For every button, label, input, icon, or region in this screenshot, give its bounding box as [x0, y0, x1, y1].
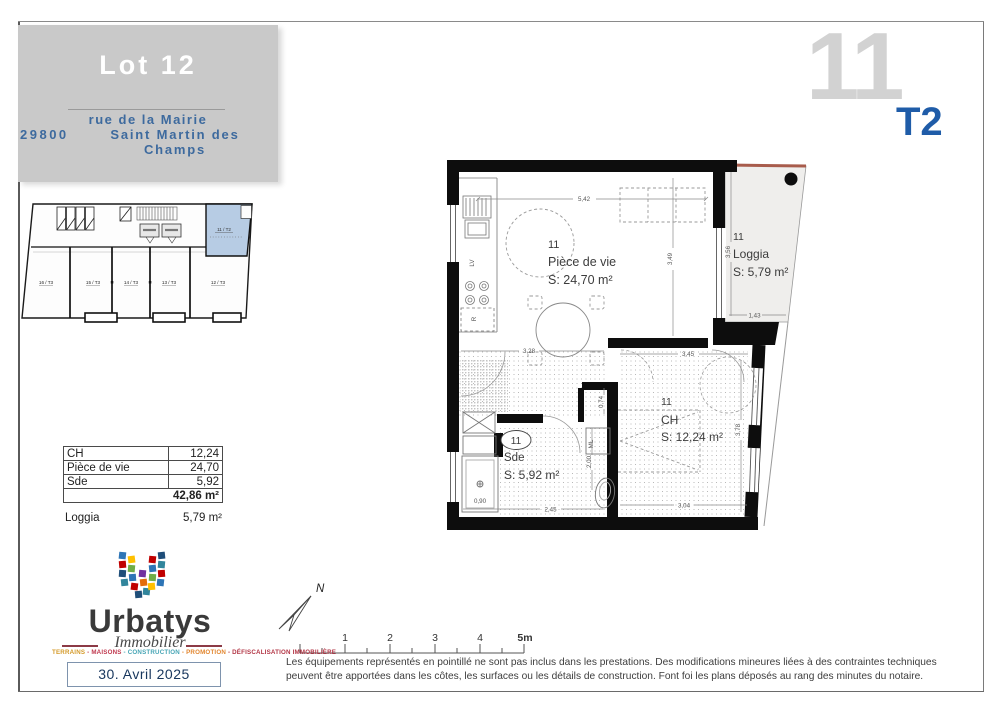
surface-table: CH12,24 Pièce de vie24,70 Sde5,92 42,86 …	[63, 446, 223, 503]
site-boundary-line	[764, 322, 788, 526]
loggia-value: 5,79 m²	[183, 512, 222, 524]
address-city: Saint Martin des Champs	[80, 127, 270, 157]
hob-icon	[466, 282, 475, 291]
loggia-label: Loggia	[65, 512, 100, 524]
sde-number: 11	[511, 436, 522, 447]
bedroom-area: S: 12,24 m²	[661, 430, 723, 444]
floor-plan: LV R	[435, 148, 820, 543]
svg-text:16 / T3: 16 / T3	[39, 280, 54, 285]
svg-text:4: 4	[477, 632, 483, 644]
disclaimer-line-2: peuvent être apportées dans les côtes, l…	[286, 670, 976, 684]
loggia-number: 11	[733, 231, 744, 243]
loggia-edge-line	[727, 165, 806, 166]
svg-text:15 / T3: 15 / T3	[86, 280, 101, 285]
svg-text:1,43: 1,43	[748, 313, 761, 320]
division-line-right	[186, 645, 222, 647]
svg-text:3,56: 3,56	[725, 245, 732, 258]
sde-area: S: 5,92 m²	[504, 468, 559, 482]
urbatys-logo-icon	[112, 550, 174, 602]
loggia-name: Loggia	[733, 247, 769, 261]
postal-code: 29800	[20, 127, 69, 142]
key-plan-bays	[85, 313, 241, 322]
kitchen-counter	[459, 178, 497, 332]
chair-icon	[528, 296, 542, 309]
living-area: S: 24,70 m²	[548, 273, 613, 287]
disclaimer: Les équipements représentés en pointillé…	[286, 656, 976, 683]
unit-number: 11	[806, 14, 901, 120]
header-divider	[68, 109, 225, 110]
loggia-area-label: S: 5,79 m²	[733, 265, 788, 279]
svg-text:14 / T3: 14 / T3	[124, 280, 139, 285]
living-number: 11	[548, 239, 559, 251]
frame-bottom	[18, 691, 984, 692]
table-row: CH12,24	[64, 447, 223, 461]
header-box	[18, 25, 278, 182]
svg-text:1: 1	[342, 632, 348, 644]
svg-text:12 / T3: 12 / T3	[211, 280, 226, 285]
svg-text:0,74: 0,74	[598, 395, 605, 408]
scale-labels: 1 2 3 4 5m	[342, 632, 533, 644]
plan-date: 30. Avril 2025	[67, 662, 221, 687]
svg-text:3,04: 3,04	[678, 503, 691, 510]
table-total-row: 42,86 m²	[64, 489, 223, 503]
lot-title: Lot 12	[18, 50, 278, 81]
svg-text:2: 2	[387, 632, 393, 644]
svg-text:5,42: 5,42	[578, 196, 591, 203]
svg-text:2,45: 2,45	[544, 507, 557, 514]
living-name: Pièce de vie	[548, 255, 616, 269]
svg-text:5m: 5m	[517, 632, 532, 644]
loggia-area-row: Loggia 5,79 m²	[65, 512, 222, 524]
bedroom-name: CH	[661, 413, 678, 427]
washer-label: ML	[588, 439, 595, 448]
fridge-label: R	[471, 316, 478, 321]
svg-text:3,49: 3,49	[667, 252, 674, 265]
svg-text:0,90: 0,90	[474, 498, 487, 505]
plan-sheet-page: Lot 12 rue de la Mairie 29800 Saint Mart…	[0, 0, 1000, 707]
address-street: rue de la Mairie	[38, 112, 258, 127]
sofa-icon	[620, 188, 705, 222]
table-row: Pièce de vie24,70	[64, 461, 223, 475]
svg-text:3,45: 3,45	[682, 351, 695, 358]
svg-text:3: 3	[432, 632, 438, 644]
key-plan-highlight-label: 11 / T2	[217, 227, 231, 232]
frame-right	[983, 21, 984, 691]
key-plan: 11 / T2 16 / T3 15 / T3 14 / T3 13 / T3 …	[15, 192, 280, 327]
dishwasher-label: LV	[469, 259, 476, 267]
north-label: N	[316, 583, 325, 595]
column-dot-icon	[785, 173, 798, 186]
sde-name: Sde	[504, 452, 524, 464]
north-arrow-icon: N	[279, 583, 325, 631]
brand-tagline: TERRAINS - MAISONS - CONSTRUCTION - PROM…	[52, 649, 252, 656]
svg-text:2,00: 2,00	[586, 455, 593, 468]
bedroom-number: 11	[661, 396, 672, 408]
svg-text:3,28: 3,28	[523, 348, 536, 355]
svg-text:3,78: 3,78	[735, 423, 742, 436]
division-line-left	[62, 645, 98, 647]
unit-type-badge: T2	[896, 100, 943, 145]
svg-text:13 / T3: 13 / T3	[162, 280, 177, 285]
table-row: Sde5,92	[64, 475, 223, 489]
disclaimer-line-1: Les équipements représentés en pointillé…	[286, 656, 976, 670]
loggia-area	[725, 166, 806, 322]
